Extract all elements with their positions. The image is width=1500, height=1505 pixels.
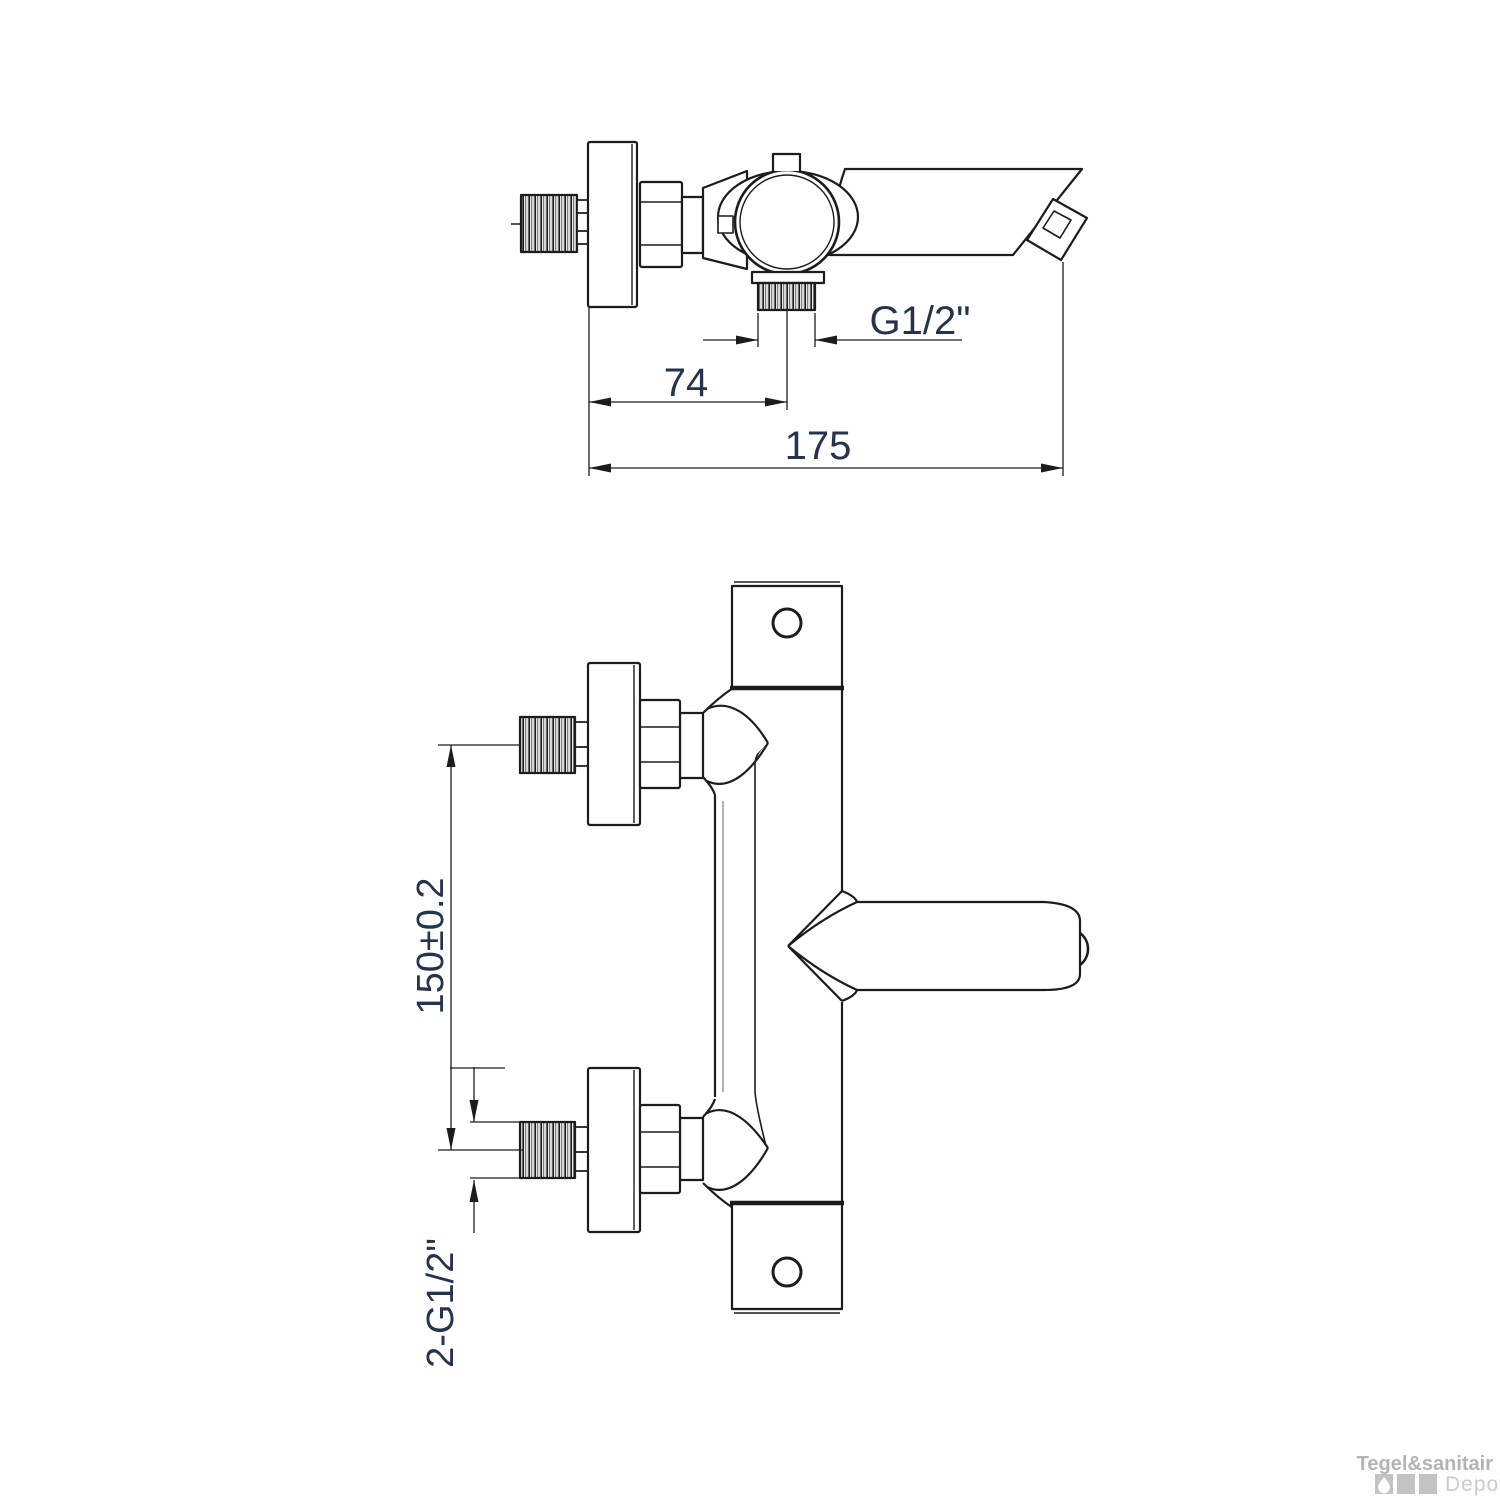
- cartridge-cap: [735, 170, 839, 274]
- inlet-connector: [577, 200, 588, 244]
- bath-mixer-dimension-drawing: G1/2" 74 175: [0, 0, 1500, 1500]
- technical-drawing-page: G1/2" 74 175: [0, 0, 1500, 1500]
- bottom-valve-neck: [680, 1118, 703, 1180]
- dim-label-outlet-thread: G1/2": [870, 299, 971, 343]
- dim-label-outlet-offset: 74: [664, 361, 709, 405]
- lever-body: [857, 902, 1080, 990]
- top-button: [773, 154, 800, 171]
- top-escutcheon: [588, 663, 640, 825]
- bottom-bracket: [730, 1203, 844, 1313]
- outlet-flange: [752, 272, 824, 283]
- valve-neck: [682, 197, 703, 253]
- bottom-inlet-thread: [520, 1122, 575, 1178]
- hex-nut: [640, 182, 682, 267]
- top-hex-nut: [640, 700, 680, 788]
- front-view: [520, 582, 1088, 1313]
- watermark-brand: Tegel&sanitair: [1357, 1453, 1494, 1475]
- inlet-thread: [521, 195, 577, 252]
- outlet-thread: [758, 283, 815, 310]
- bottom-inlet-assembly: [520, 1068, 703, 1232]
- bottom-hex-nut: [640, 1105, 680, 1193]
- temperature-lever: [788, 891, 1088, 1001]
- top-bracket: [730, 582, 844, 688]
- watermark: Tegel&sanitair Depot: [1357, 1453, 1500, 1496]
- top-inlet-assembly: [520, 663, 703, 825]
- wall-plate: [588, 142, 637, 307]
- top-valve-neck: [680, 713, 703, 778]
- lever-end-cap: [1080, 933, 1088, 965]
- bottom-escutcheon: [588, 1068, 640, 1232]
- dim-label-total-depth: 175: [785, 424, 852, 468]
- watermark-tile-2: [1397, 1474, 1415, 1494]
- side-view: [511, 142, 1087, 310]
- dim-label-inlet-threads: 2-G1/2": [420, 1238, 462, 1368]
- dim-label-inlet-distance: 150±0.2: [410, 877, 452, 1014]
- watermark-tile-3: [1419, 1474, 1437, 1494]
- watermark-sub: Depot: [1445, 1473, 1500, 1496]
- top-inlet-thread: [520, 717, 575, 773]
